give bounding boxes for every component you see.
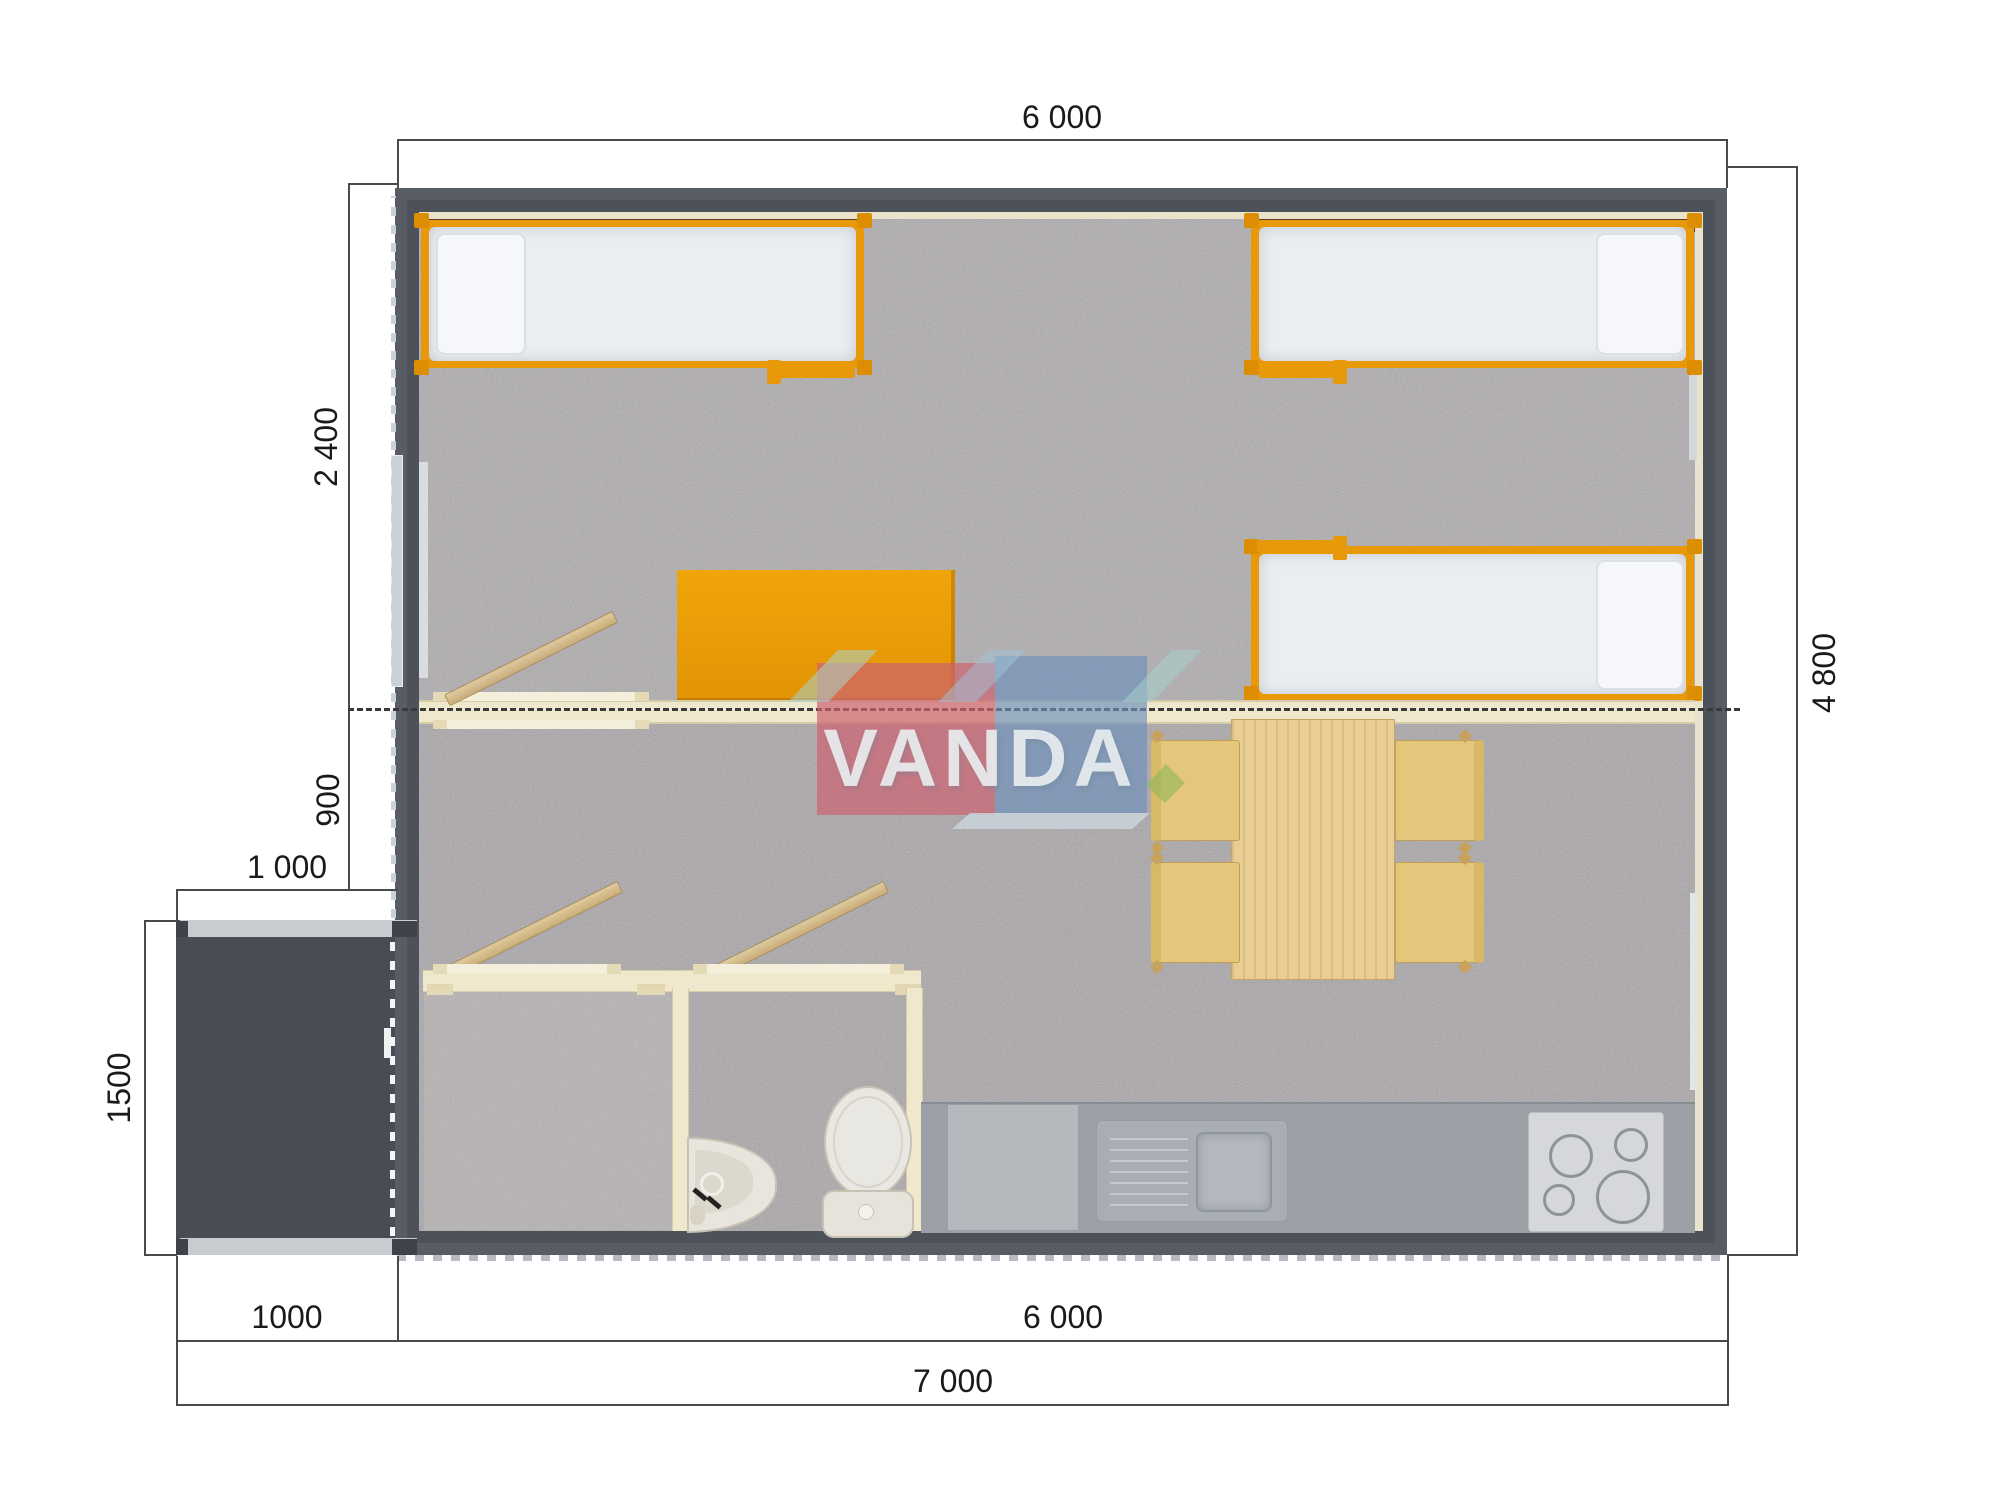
bathroom-wall-slab-left: [433, 964, 621, 974]
dim-ext: [1727, 1254, 1798, 1256]
dim-line-left-upper: [348, 183, 350, 711]
bed-2-post: [1687, 213, 1702, 228]
dim-line-bottom-1: [176, 1340, 1729, 1342]
porch-step-top-cap-right: [392, 921, 417, 937]
bed-1-step-bracket-nub: [767, 360, 781, 384]
dim-line-right: [1796, 166, 1798, 1256]
dim-label-bedroom-depth: 2 400: [309, 367, 343, 527]
dim-ext: [1726, 166, 1798, 168]
watermark-green-bevel: [1146, 764, 1185, 803]
sink-basin: [1196, 1132, 1272, 1212]
bed-3-step-bracket-nub: [1333, 536, 1347, 560]
fold-bench-slab-bottom: [433, 720, 649, 729]
dim-ext: [144, 1254, 177, 1256]
floor-plan-canvas: VANDA 6 000 4 800 2 400 900 1 000 1500 1…: [0, 0, 2000, 1502]
dim-line-bottom-2: [176, 1404, 1729, 1406]
dim-label-top-width: 6 000: [982, 100, 1142, 134]
dim-label-porch-depth: 1500: [102, 1008, 136, 1168]
bed-2-post: [1687, 360, 1702, 375]
bathroom-wall-slab-right: [693, 964, 904, 974]
dim-label-hall-depth: 900: [311, 740, 345, 860]
dim-label-porch-width: 1 000: [207, 850, 367, 884]
dim-ext: [397, 1256, 399, 1342]
chair: [1395, 862, 1484, 963]
dining-table: [1231, 719, 1395, 980]
faucet-icon: [700, 1172, 724, 1196]
watermark-text: VANDA: [816, 712, 1146, 806]
porch-step-top-cap-left: [176, 921, 188, 937]
dim-label-bottom-porch: 1000: [207, 1300, 367, 1334]
burner-icon: [1543, 1184, 1575, 1216]
dim-line-porch-width: [176, 889, 398, 891]
chair: [1151, 862, 1240, 963]
soap-bottle-icon: [690, 1205, 705, 1225]
right-wall-window-upper: [1689, 372, 1697, 460]
bed-3-post: [1687, 539, 1702, 554]
burner-icon: [1596, 1170, 1650, 1224]
bed-2-frame: [1251, 220, 1694, 368]
bed-1-post: [414, 360, 429, 375]
toilet-lid-rim: [833, 1096, 903, 1188]
toilet-flush-button: [858, 1204, 874, 1220]
dim-ext: [1726, 139, 1728, 188]
dim-label-bottom-total: 7 000: [873, 1364, 1033, 1398]
left-wall-siding-dashes: [391, 196, 396, 918]
bed-2-step-bracket-nub: [1333, 360, 1347, 384]
bed-3-frame: [1251, 546, 1694, 700]
appliance-block: [947, 1104, 1079, 1231]
dim-ext: [1727, 1256, 1729, 1406]
dim-ext: [348, 183, 397, 185]
entry-room-floor-tint: [424, 990, 672, 1230]
dim-label-right-height: 4 800: [1807, 593, 1841, 753]
bed-1-frame: [421, 220, 864, 368]
sink-drainboard-ridges: [1110, 1138, 1188, 1208]
bed-3-pillow: [1596, 560, 1684, 690]
dim-line-top: [397, 139, 1728, 141]
bed-1-post: [857, 360, 872, 375]
porch-step-bottom: [180, 1238, 417, 1255]
watermark-bottom-bevel: [952, 813, 1150, 829]
dim-ext: [397, 139, 399, 188]
bed-1-post: [857, 213, 872, 228]
bed-2-post: [1244, 213, 1259, 228]
porch-step-bottom-cap-right: [392, 1239, 417, 1255]
bed-3-post: [1687, 686, 1702, 701]
right-wall-window-lower: [1690, 893, 1697, 1090]
burner-icon: [1549, 1134, 1593, 1178]
entry-door-dashed-line: [390, 940, 395, 1236]
porch-floor: [176, 920, 395, 1255]
bed-1-pillow: [436, 233, 526, 355]
dim-ext: [176, 891, 178, 920]
dim-ext: [144, 920, 177, 922]
dim-label-bottom-main: 6 000: [983, 1300, 1143, 1334]
bed-1-post: [414, 213, 429, 228]
top-wall-inner-face: [419, 212, 1703, 219]
left-window-sill: [419, 462, 428, 678]
bed-2-pillow: [1596, 233, 1684, 355]
dim-ext: [176, 1256, 178, 1406]
bottom-wall-siding-dashes: [397, 1255, 1727, 1261]
burner-icon: [1614, 1128, 1648, 1162]
bed-2-post: [1244, 360, 1259, 375]
dim-line-porch-depth: [144, 920, 146, 1256]
porch-step-bottom-cap-left: [176, 1239, 188, 1255]
chair: [1395, 740, 1484, 841]
porch-step-top: [180, 920, 417, 937]
bed-3-post: [1244, 686, 1259, 701]
entry-door-handle: [384, 1028, 391, 1058]
